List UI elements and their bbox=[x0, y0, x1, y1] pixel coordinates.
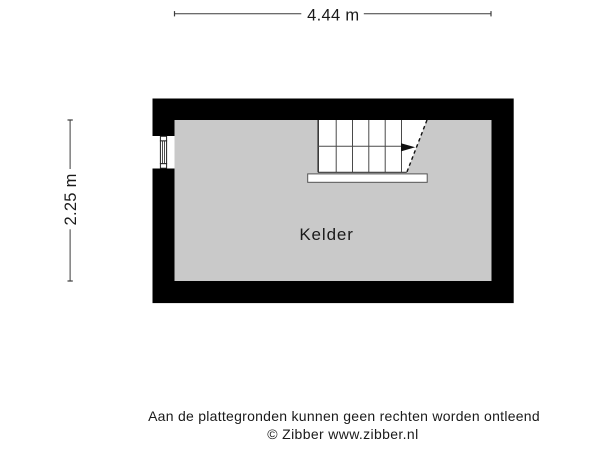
svg-text:2.25 m: 2.25 m bbox=[62, 173, 80, 225]
svg-text:© Zibber www.zibber.nl: © Zibber www.zibber.nl bbox=[267, 426, 418, 442]
svg-text:4.44 m: 4.44 m bbox=[307, 6, 359, 24]
svg-text:Aan de plattegronden kunnen ge: Aan de plattegronden kunnen geen rechten… bbox=[148, 408, 540, 424]
svg-text:Kelder: Kelder bbox=[299, 225, 354, 244]
